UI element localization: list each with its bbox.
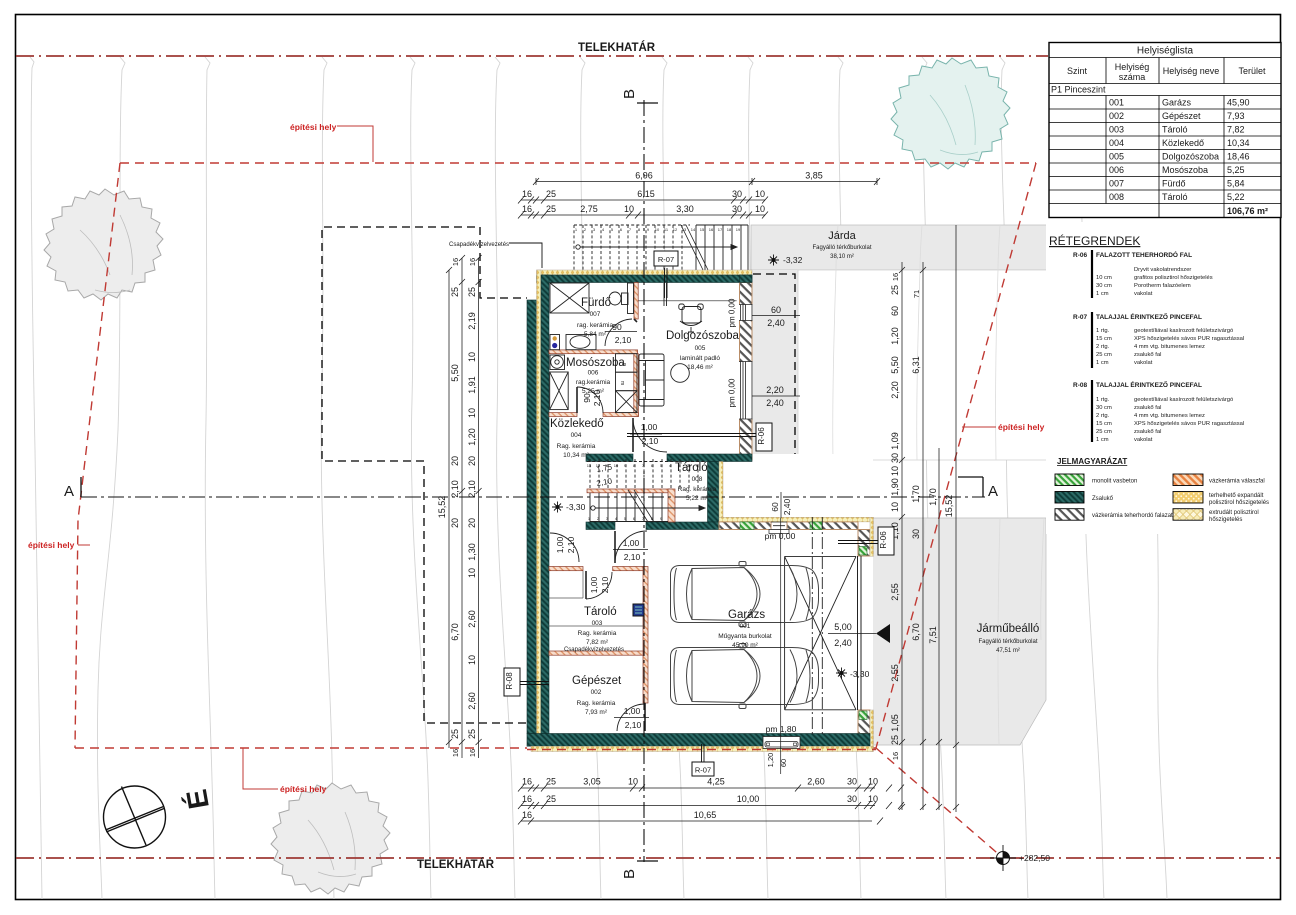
svg-text:106,76 m²: 106,76 m² <box>1227 206 1268 216</box>
svg-text:Dryvit vakolatrendszer: Dryvit vakolatrendszer <box>1134 267 1191 273</box>
svg-text:5,84 m²: 5,84 m² <box>584 331 607 338</box>
svg-text:Terület: Terület <box>1238 66 1266 76</box>
svg-text:vakolat: vakolat <box>1134 291 1153 297</box>
svg-text:5,50: 5,50 <box>890 356 900 374</box>
svg-text:6,70: 6,70 <box>911 623 921 641</box>
svg-text:10: 10 <box>655 227 660 232</box>
svg-text:vázkerámia válaszfal: vázkerámia válaszfal <box>1209 479 1265 485</box>
svg-text:2,10: 2,10 <box>615 335 632 345</box>
svg-text:2,10: 2,10 <box>566 536 576 553</box>
svg-text:2,10: 2,10 <box>624 552 641 562</box>
svg-text:008: 008 <box>692 476 703 483</box>
svg-text:TALAJJAL ÉRINTKEZŐ PINCEFAL: TALAJJAL ÉRINTKEZŐ PINCEFAL <box>1096 380 1202 389</box>
svg-text:25: 25 <box>546 777 556 787</box>
svg-text:pm 0,00: pm 0,00 <box>728 378 737 407</box>
svg-text:+282,50: +282,50 <box>1019 853 1050 863</box>
svg-text:Mosószoba: Mosószoba <box>566 357 625 369</box>
svg-text:15 cm: 15 cm <box>1096 421 1112 427</box>
svg-text:10,34 m²: 10,34 m² <box>563 452 589 459</box>
svg-text:7,82 m²: 7,82 m² <box>586 639 609 646</box>
svg-text:Dolgozószoba: Dolgozószoba <box>1162 152 1219 162</box>
svg-text:10: 10 <box>755 204 765 214</box>
svg-text:XPS hőszigetelés sávos PUR rag: XPS hőszigetelés sávos PUR ragasztással <box>1134 336 1244 342</box>
svg-text:30 cm: 30 cm <box>1096 283 1112 289</box>
svg-text:60: 60 <box>779 759 788 767</box>
svg-text:2,20: 2,20 <box>766 385 784 395</box>
svg-text:10: 10 <box>467 568 477 578</box>
svg-text:7,93: 7,93 <box>1227 111 1245 121</box>
svg-text:25: 25 <box>546 204 556 214</box>
svg-text:vázkerámia teherhordó falazat: vázkerámia teherhordó falazat <box>1092 513 1173 519</box>
svg-text:6,70: 6,70 <box>450 623 460 641</box>
svg-text:1,00: 1,00 <box>641 422 658 432</box>
svg-text:006: 006 <box>588 370 599 377</box>
svg-text:60: 60 <box>770 502 780 512</box>
svg-text:10: 10 <box>467 655 477 665</box>
svg-text:grafitos polisztirol hőszigete: grafitos polisztirol hőszigetelés <box>1134 275 1213 281</box>
svg-text:2,10: 2,10 <box>625 720 642 730</box>
svg-text:30 cm: 30 cm <box>1096 405 1112 411</box>
svg-text:30: 30 <box>847 777 857 787</box>
svg-text:-3,30: -3,30 <box>566 502 586 512</box>
svg-text:laminált padló: laminált padló <box>680 355 720 362</box>
svg-text:pm 0,00: pm 0,00 <box>728 298 737 327</box>
svg-text:10: 10 <box>755 189 765 199</box>
svg-text:25: 25 <box>546 189 556 199</box>
svg-text:Fagyálló térkőburkolat: Fagyálló térkőburkolat <box>978 639 1037 645</box>
svg-text:RÉTEGRENDEK: RÉTEGRENDEK <box>1049 233 1140 248</box>
svg-text:2,60: 2,60 <box>467 610 477 628</box>
svg-text:monolit vasbeton: monolit vasbeton <box>1092 479 1137 485</box>
svg-text:Gépészet: Gépészet <box>1162 111 1201 121</box>
svg-text:Rag. kerámia: Rag. kerámia <box>577 700 616 707</box>
svg-text:Mosószoba: Mosószoba <box>1162 165 1208 175</box>
svg-text:71: 71 <box>912 290 921 298</box>
svg-text:10: 10 <box>890 502 900 512</box>
svg-text:25: 25 <box>450 729 460 739</box>
svg-text:zsalukő fal: zsalukő fal <box>1134 405 1161 411</box>
svg-text:száma: száma <box>1119 72 1146 82</box>
svg-text:1 rtg.: 1 rtg. <box>1096 397 1110 403</box>
svg-text:Helyiség: Helyiség <box>1115 62 1150 72</box>
svg-text:1,00: 1,00 <box>623 538 640 548</box>
svg-text:Gépészet: Gépészet <box>572 675 622 687</box>
svg-text:5,22 m²: 5,22 m² <box>686 495 709 502</box>
svg-text:4 mm vtg. bitumenes lemez: 4 mm vtg. bitumenes lemez <box>1134 413 1205 419</box>
svg-text:1,00: 1,00 <box>555 536 565 553</box>
svg-text:30: 30 <box>732 189 742 199</box>
svg-text:Közlekedő: Közlekedő <box>1162 138 1204 148</box>
svg-text:16: 16 <box>468 258 477 266</box>
svg-text:60: 60 <box>771 305 781 315</box>
svg-text:Garázs: Garázs <box>728 609 765 621</box>
svg-text:47,51 m²: 47,51 m² <box>996 648 1020 654</box>
svg-text:004: 004 <box>571 432 582 439</box>
svg-text:3,85: 3,85 <box>805 171 823 181</box>
svg-text:1,91: 1,91 <box>467 376 477 394</box>
svg-text:TALAJJAL ÉRINTKEZŐ PINCEFAL: TALAJJAL ÉRINTKEZŐ PINCEFAL <box>1096 312 1202 321</box>
svg-text:Rag. kerámia: Rag. kerámia <box>678 486 717 493</box>
svg-text:12: 12 <box>673 227 678 232</box>
svg-text:Fürdő: Fürdő <box>581 297 611 309</box>
svg-text:1,20: 1,20 <box>766 753 775 768</box>
svg-text:FALAZOTT TEHERHORDÓ FAL: FALAZOTT TEHERHORDÓ FAL <box>1096 250 1192 259</box>
svg-text:1 cm: 1 cm <box>1096 360 1109 366</box>
svg-text:Fagyálló térkőburkolat: Fagyálló térkőburkolat <box>812 245 871 251</box>
svg-text:1 cm: 1 cm <box>1096 291 1109 297</box>
svg-text:terhelhető expandált: terhelhető expandált <box>1209 493 1264 499</box>
svg-text:P1 Pinceszint: P1 Pinceszint <box>1051 85 1106 95</box>
svg-text:15: 15 <box>700 227 705 232</box>
svg-text:16: 16 <box>451 258 460 266</box>
svg-text:25 cm: 25 cm <box>1096 352 1112 358</box>
svg-text:Csapadékvízelvezetés: Csapadékvízelvezetés <box>449 242 509 248</box>
svg-text:Tároló: Tároló <box>584 606 617 618</box>
svg-text:003: 003 <box>592 620 603 627</box>
svg-text:45,90 m²: 45,90 m² <box>732 642 758 649</box>
svg-text:geotextíliával kasírozott felü: geotextíliával kasírozott felületszivárg… <box>1134 397 1233 403</box>
svg-text:20: 20 <box>450 518 460 528</box>
svg-text:Járműbeálló: Járműbeálló <box>977 623 1040 635</box>
svg-text:16: 16 <box>522 794 532 804</box>
svg-text:004: 004 <box>1109 138 1124 148</box>
svg-text:16: 16 <box>468 749 477 757</box>
svg-text:25: 25 <box>546 794 556 804</box>
svg-text:2,60: 2,60 <box>467 692 477 710</box>
svg-text:A: A <box>64 483 74 500</box>
svg-text:13: 13 <box>587 463 592 468</box>
svg-text:1,70: 1,70 <box>911 485 921 503</box>
svg-text:5,22: 5,22 <box>1227 192 1245 202</box>
svg-text:10: 10 <box>467 408 477 418</box>
svg-text:20: 20 <box>467 456 477 466</box>
svg-text:Műgyanta burkolat: Műgyanta burkolat <box>718 633 772 640</box>
svg-text:Szint: Szint <box>1067 66 1088 76</box>
svg-text:Zsalukő: Zsalukő <box>1092 496 1114 502</box>
svg-text:18,46: 18,46 <box>1227 152 1250 162</box>
svg-text:90: 90 <box>612 322 622 332</box>
svg-text:R-06: R-06 <box>879 531 888 549</box>
svg-text:10: 10 <box>890 466 900 476</box>
svg-text:003: 003 <box>1109 125 1124 135</box>
svg-text:2,10: 2,10 <box>467 480 477 498</box>
svg-text:1,90: 1,90 <box>890 478 900 496</box>
svg-text:2,10: 2,10 <box>600 576 610 593</box>
svg-text:2,75: 2,75 <box>580 204 598 214</box>
svg-text:építési hely: építési hely <box>28 540 75 550</box>
svg-text:10: 10 <box>628 777 638 787</box>
svg-text:zsalukő fal: zsalukő fal <box>1134 352 1161 358</box>
svg-text:005: 005 <box>1109 152 1124 162</box>
svg-text:25: 25 <box>890 285 900 295</box>
svg-text:10: 10 <box>868 777 878 787</box>
svg-text:Tároló: Tároló <box>1162 192 1188 202</box>
svg-text:A: A <box>988 483 998 500</box>
svg-text:1,20: 1,20 <box>467 428 477 446</box>
svg-text:10: 10 <box>868 794 878 804</box>
svg-text:Helyiséglista: Helyiséglista <box>1137 46 1194 57</box>
svg-text:B: B <box>621 89 638 99</box>
svg-text:10,65: 10,65 <box>694 810 717 820</box>
svg-text:10: 10 <box>624 204 634 214</box>
svg-text:30: 30 <box>911 529 921 539</box>
svg-text:6,15: 6,15 <box>637 189 655 199</box>
svg-text:16: 16 <box>522 777 532 787</box>
svg-text:Dolgozószoba: Dolgozószoba <box>666 330 739 342</box>
svg-text:2,20: 2,20 <box>890 381 900 399</box>
svg-text:45,90: 45,90 <box>1227 98 1250 108</box>
svg-text:B: B <box>621 869 638 879</box>
svg-text:Csapadékvízelvezetés: Csapadékvízelvezetés <box>564 647 624 653</box>
svg-text:60: 60 <box>890 306 900 316</box>
svg-text:7,51: 7,51 <box>928 626 938 644</box>
svg-text:Közlekedő: Közlekedő <box>550 418 604 430</box>
svg-text:25: 25 <box>890 735 900 745</box>
svg-text:JELMAGYARÁZAT: JELMAGYARÁZAT <box>1057 457 1127 466</box>
svg-text:14: 14 <box>691 227 696 232</box>
svg-text:1,20: 1,20 <box>890 327 900 345</box>
svg-text:16: 16 <box>522 810 532 820</box>
svg-text:Fürdő: Fürdő <box>1162 179 1186 189</box>
svg-text:R-07: R-07 <box>658 255 674 264</box>
svg-text:25: 25 <box>467 729 477 739</box>
svg-text:20: 20 <box>450 456 460 466</box>
svg-text:2,40: 2,40 <box>767 318 785 328</box>
svg-text:008: 008 <box>1109 192 1124 202</box>
svg-text:3,05: 3,05 <box>583 777 601 787</box>
svg-text:1,05: 1,05 <box>890 714 900 732</box>
svg-text:Tároló: Tároló <box>675 462 708 474</box>
svg-text:2,55: 2,55 <box>890 583 900 601</box>
svg-text:vakolat: vakolat <box>1134 360 1153 366</box>
svg-text:zsalukő fal: zsalukő fal <box>1134 429 1161 435</box>
svg-text:10: 10 <box>614 463 619 468</box>
svg-text:5,25: 5,25 <box>1227 165 1245 175</box>
svg-text:építési hely: építési hely <box>998 422 1045 432</box>
svg-text:geotextíliával kasírozott felü: geotextíliával kasírozott felületszivárg… <box>1134 328 1233 334</box>
svg-text:Helyiség neve: Helyiség neve <box>1163 66 1220 76</box>
svg-text:2 rtg.: 2 rtg. <box>1096 344 1110 350</box>
svg-text:hőszigetelés: hőszigetelés <box>1209 517 1242 523</box>
svg-text:1,30: 1,30 <box>467 543 477 561</box>
svg-text:6,31: 6,31 <box>911 356 921 374</box>
svg-text:2,19: 2,19 <box>467 312 477 330</box>
svg-text:16: 16 <box>709 227 714 232</box>
svg-text:25: 25 <box>467 287 477 297</box>
svg-text:2,40: 2,40 <box>834 638 852 648</box>
svg-text:16: 16 <box>891 273 900 281</box>
svg-text:Porotherm falazóelem: Porotherm falazóelem <box>1134 283 1191 289</box>
svg-text:5,50: 5,50 <box>450 364 460 382</box>
svg-text:1,00: 1,00 <box>624 706 641 716</box>
svg-text:építési hely: építési hely <box>290 122 337 132</box>
svg-text:16: 16 <box>451 749 460 757</box>
svg-text:30: 30 <box>847 794 857 804</box>
svg-text:XPS hőszigetelés sávos PUR rag: XPS hőszigetelés sávos PUR ragasztással <box>1134 421 1244 427</box>
svg-text:m: m <box>619 381 625 385</box>
svg-text:1,09: 1,09 <box>890 432 900 450</box>
svg-text:1,00: 1,00 <box>589 576 599 593</box>
svg-text:10,00: 10,00 <box>737 794 760 804</box>
svg-text:Járda: Járda <box>828 230 856 242</box>
svg-text:-3,32: -3,32 <box>783 255 803 265</box>
svg-text:2,60: 2,60 <box>807 777 825 787</box>
svg-text:2 rtg.: 2 rtg. <box>1096 413 1110 419</box>
svg-text:rag.kerámia: rag.kerámia <box>576 379 611 386</box>
svg-text:Rag. kerámia: Rag. kerámia <box>557 443 596 450</box>
svg-text:20: 20 <box>467 518 477 528</box>
svg-text:38,10 m²: 38,10 m² <box>830 254 854 260</box>
svg-text:2,10: 2,10 <box>450 480 460 498</box>
svg-text:19: 19 <box>736 227 741 232</box>
svg-text:005: 005 <box>695 345 706 352</box>
svg-text:-3,30: -3,30 <box>850 669 870 679</box>
svg-text:007: 007 <box>590 311 601 318</box>
svg-text:R-06: R-06 <box>1073 252 1087 259</box>
svg-text:25 cm: 25 cm <box>1096 429 1112 435</box>
svg-text:15,52: 15,52 <box>437 496 447 519</box>
svg-text:007: 007 <box>1109 179 1124 189</box>
svg-text:006: 006 <box>1109 165 1124 175</box>
svg-text:5,25 m²: 5,25 m² <box>582 388 605 395</box>
svg-text:2,40: 2,40 <box>766 398 784 408</box>
svg-text:30: 30 <box>890 453 900 463</box>
svg-text:pm 1,80: pm 1,80 <box>766 724 797 734</box>
svg-text:10,34: 10,34 <box>1227 138 1250 148</box>
svg-text:rag. kerámia: rag. kerámia <box>577 322 614 329</box>
svg-text:R-08: R-08 <box>505 672 514 690</box>
svg-text:Rag. kerámia: Rag. kerámia <box>578 630 617 637</box>
svg-text:polisztirol hőszigetelés: polisztirol hőszigetelés <box>1209 500 1269 506</box>
svg-text:5,84: 5,84 <box>1227 179 1245 189</box>
svg-text:TELEKHATÁR: TELEKHATÁR <box>578 41 656 54</box>
svg-text:5,00: 5,00 <box>834 622 852 632</box>
svg-text:építési hely: építési hely <box>280 784 327 794</box>
svg-text:2,40: 2,40 <box>782 498 792 515</box>
svg-text:Tároló: Tároló <box>1162 125 1188 135</box>
svg-text:16: 16 <box>891 752 900 760</box>
svg-text:R-07: R-07 <box>695 766 711 775</box>
svg-text:001: 001 <box>1109 98 1124 108</box>
svg-text:R-08: R-08 <box>1073 382 1087 389</box>
svg-text:17: 17 <box>718 227 723 232</box>
svg-text:15,52: 15,52 <box>944 495 954 518</box>
svg-text:10 cm: 10 cm <box>1096 275 1112 281</box>
svg-text:TELEKHATÁR: TELEKHATÁR <box>417 858 495 871</box>
svg-text:extrudált polisztirol: extrudált polisztirol <box>1209 510 1259 516</box>
svg-text:7,93 m²: 7,93 m² <box>585 709 608 716</box>
svg-text:30: 30 <box>732 204 742 214</box>
svg-text:001: 001 <box>740 623 751 630</box>
svg-text:18,46 m²: 18,46 m² <box>687 364 713 371</box>
svg-text:16: 16 <box>522 204 532 214</box>
svg-text:pm 0,00: pm 0,00 <box>765 531 796 541</box>
svg-text:vakolat: vakolat <box>1134 437 1153 443</box>
svg-text:15 cm: 15 cm <box>1096 336 1112 342</box>
svg-text:002: 002 <box>1109 111 1124 121</box>
svg-text:1 cm: 1 cm <box>1096 437 1109 443</box>
svg-text:10: 10 <box>467 352 477 362</box>
svg-text:002: 002 <box>591 689 602 696</box>
svg-text:18: 18 <box>727 227 732 232</box>
svg-text:1 rtg.: 1 rtg. <box>1096 328 1110 334</box>
svg-text:4,25: 4,25 <box>707 777 725 787</box>
svg-text:Garázs: Garázs <box>1162 98 1192 108</box>
svg-text:16: 16 <box>522 189 532 199</box>
svg-text:3,30: 3,30 <box>676 204 694 214</box>
svg-text:7,82: 7,82 <box>1227 125 1245 135</box>
svg-text:R-07: R-07 <box>1073 314 1087 321</box>
svg-text:R-06: R-06 <box>757 427 766 445</box>
svg-text:4 mm vtg. bitumenes lemez: 4 mm vtg. bitumenes lemez <box>1134 344 1205 350</box>
svg-text:25: 25 <box>450 287 460 297</box>
svg-text:2,55: 2,55 <box>890 664 900 682</box>
